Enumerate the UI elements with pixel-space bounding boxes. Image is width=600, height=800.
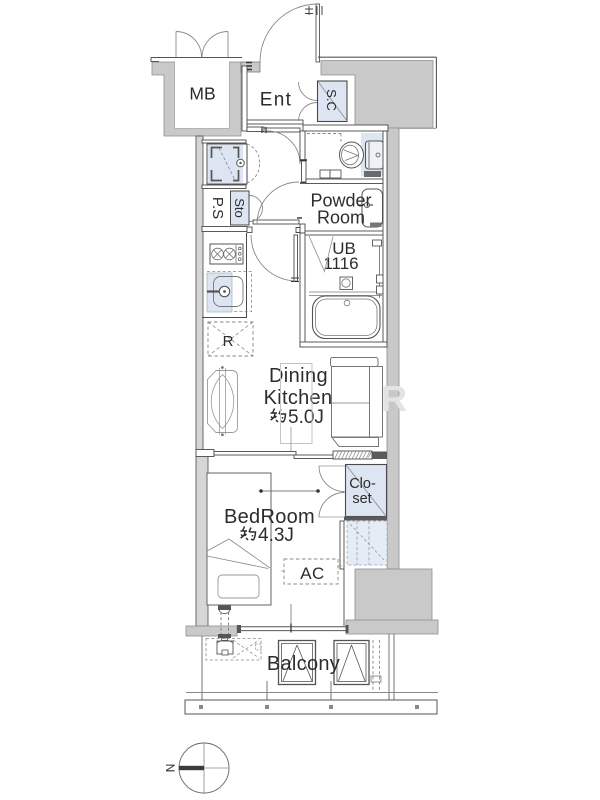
- svg-text:Dining: Dining: [269, 365, 328, 387]
- svg-text:AC: AC: [300, 564, 325, 583]
- svg-text:S.C: S.C: [324, 89, 339, 111]
- svg-text:Ent: Ent: [260, 90, 292, 111]
- svg-text:Kitchen: Kitchen: [264, 387, 333, 409]
- svg-text:Room: Room: [317, 208, 365, 228]
- svg-text:Balcony: Balcony: [267, 653, 340, 675]
- svg-text:N: N: [163, 764, 177, 773]
- svg-text:1116: 1116: [323, 254, 358, 273]
- svg-text:5.0J: 5.0J: [288, 407, 324, 428]
- svg-text:Clo-: Clo-: [349, 476, 376, 492]
- svg-text:MB: MB: [189, 84, 215, 104]
- svg-text:R: R: [223, 333, 234, 350]
- svg-text:R: R: [381, 378, 407, 419]
- svg-text:Sto: Sto: [232, 198, 247, 218]
- svg-text:4.3J: 4.3J: [258, 525, 294, 546]
- svg-text:set: set: [352, 491, 371, 507]
- svg-text:P.S: P.S: [209, 197, 226, 219]
